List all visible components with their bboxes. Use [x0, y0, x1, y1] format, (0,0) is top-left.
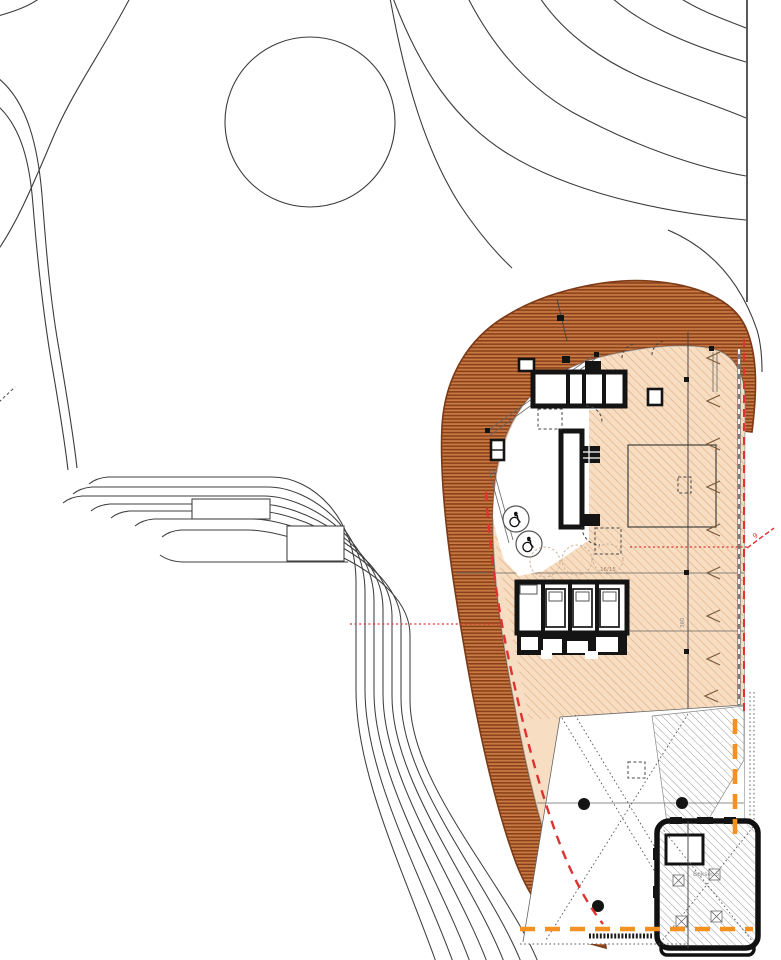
lot-number-label: 16/15	[600, 567, 616, 573]
road-structure-2	[287, 526, 344, 561]
section-marker-label: 9	[751, 532, 759, 541]
accessible-wc-2	[516, 531, 542, 557]
contour-circle	[225, 37, 395, 207]
dimension-label: 360	[680, 617, 686, 628]
accessible-wc-1	[503, 506, 529, 532]
site-plan-drawing: 16/15 360	[0, 0, 781, 960]
stair-core	[561, 431, 582, 527]
tree-dot	[676, 797, 688, 809]
outbuilding-label: Bokser 5	[693, 871, 719, 878]
tree-dot	[578, 798, 590, 810]
room-block-top	[533, 372, 625, 406]
road-structure-1	[192, 499, 270, 519]
site-plan-canvas: 16/15 360	[0, 0, 781, 960]
outbuilding-room	[666, 835, 703, 864]
outbuilding: Bokser 5	[653, 817, 758, 955]
shelf-grid	[583, 446, 600, 463]
